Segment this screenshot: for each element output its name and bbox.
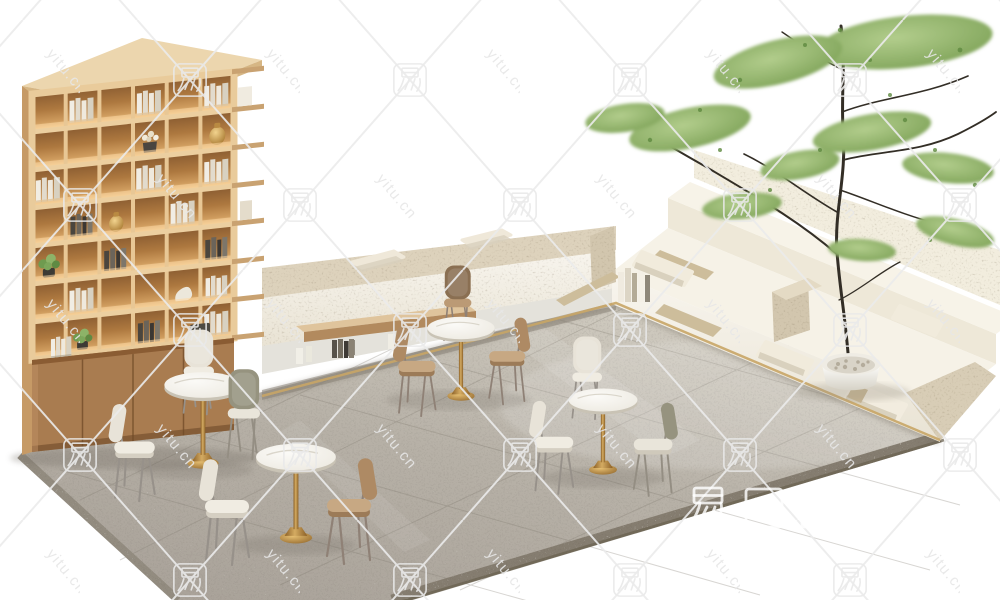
brand-watermark: 易图网 <box>688 485 856 537</box>
brand-watermark-text: 易图网 <box>688 485 856 537</box>
watermark-layer: 易图网 <box>0 0 1000 600</box>
interior-render: yitu.cn yitu.cn 易 <box>0 0 1000 600</box>
scene-render: yitu.cn yitu.cn 易 <box>0 0 1000 600</box>
